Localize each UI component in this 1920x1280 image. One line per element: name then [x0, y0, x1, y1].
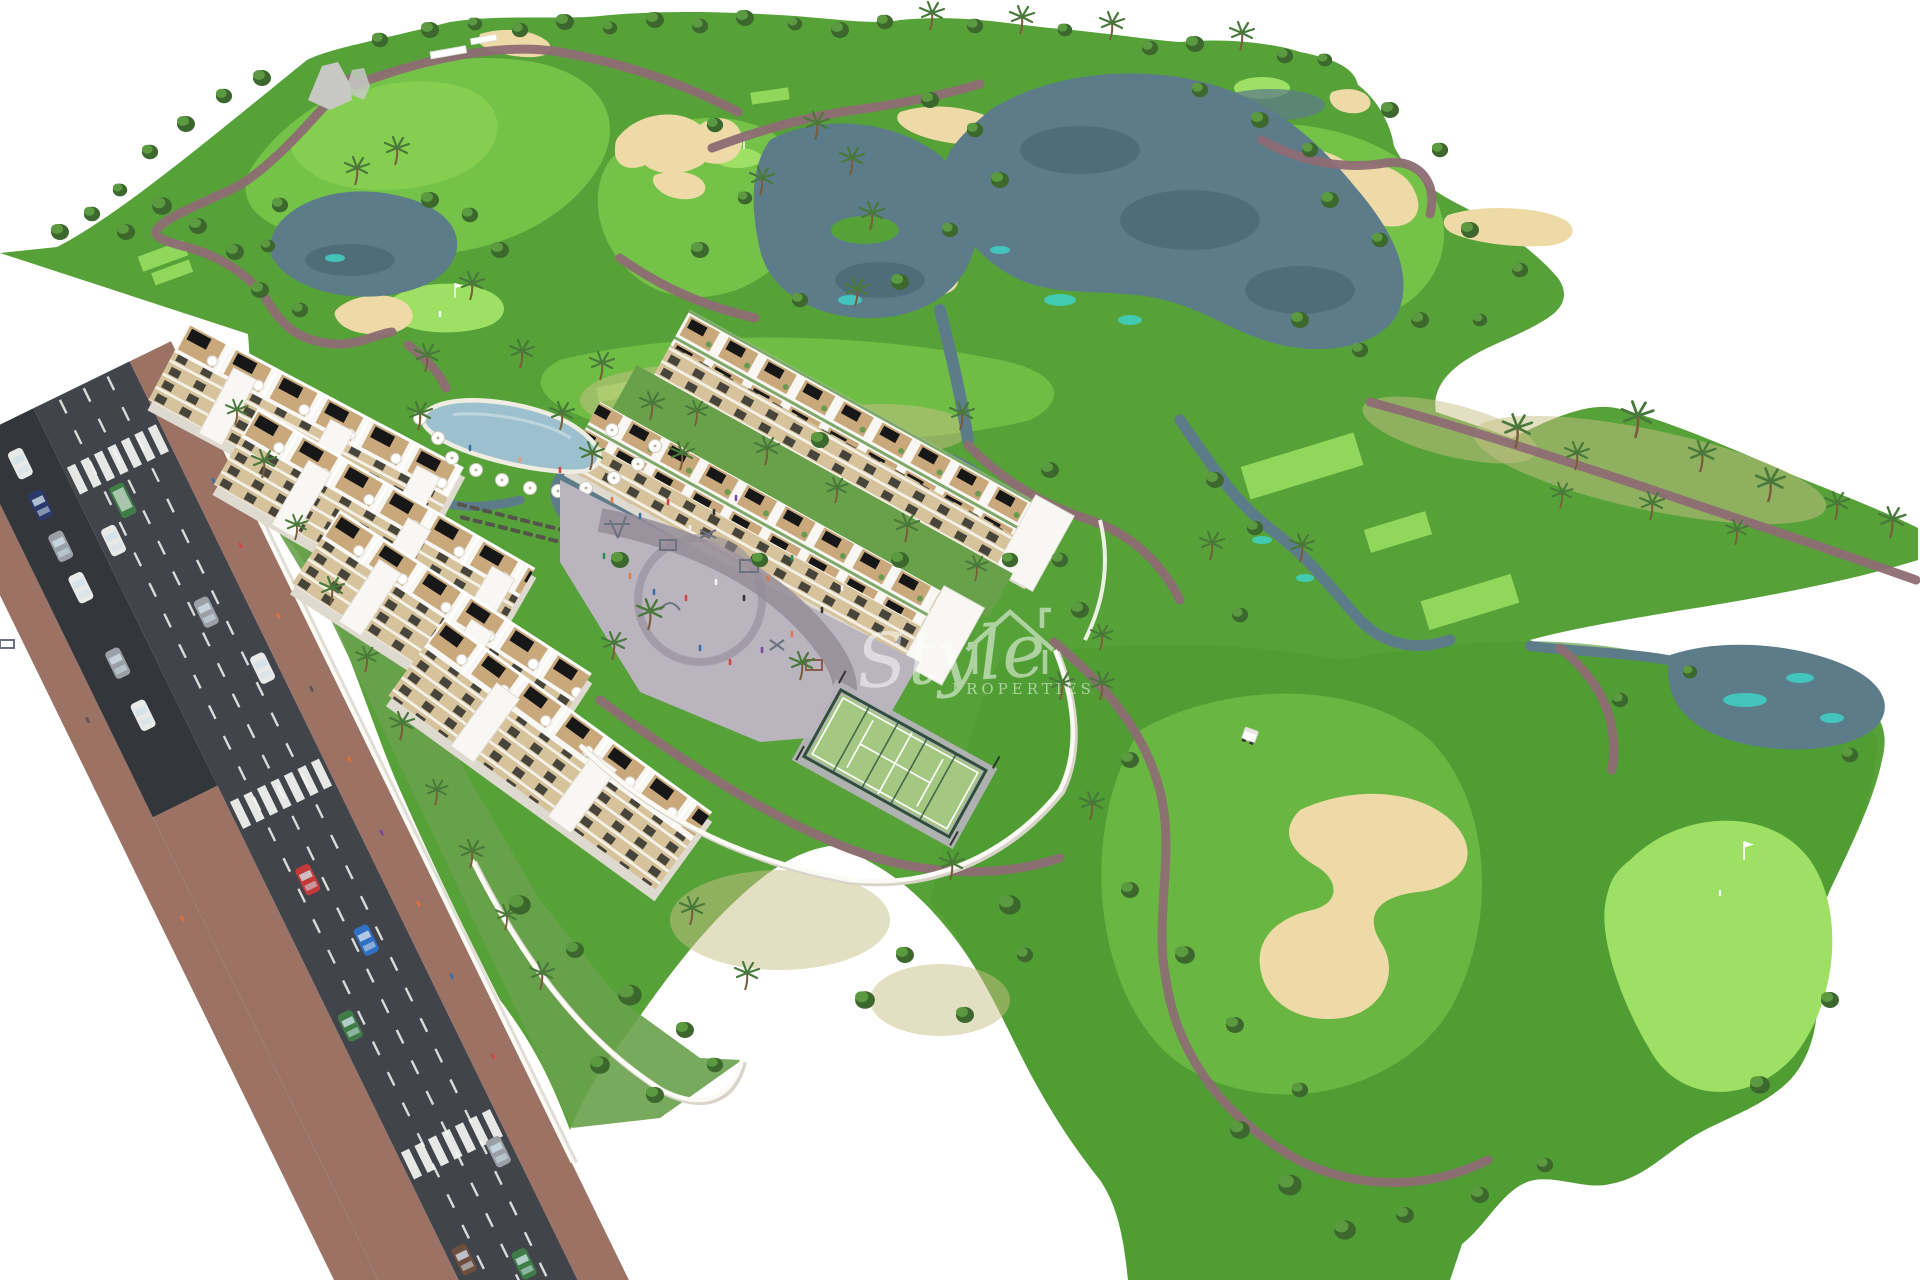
aerial-render-page: Style PROPERTIES: [0, 0, 1920, 1280]
golfer: [439, 311, 442, 317]
golfer: [1719, 890, 1722, 896]
watermark-caption: PROPERTIES: [952, 680, 1095, 698]
site-aerial-render: Style PROPERTIES: [0, 0, 1920, 1280]
